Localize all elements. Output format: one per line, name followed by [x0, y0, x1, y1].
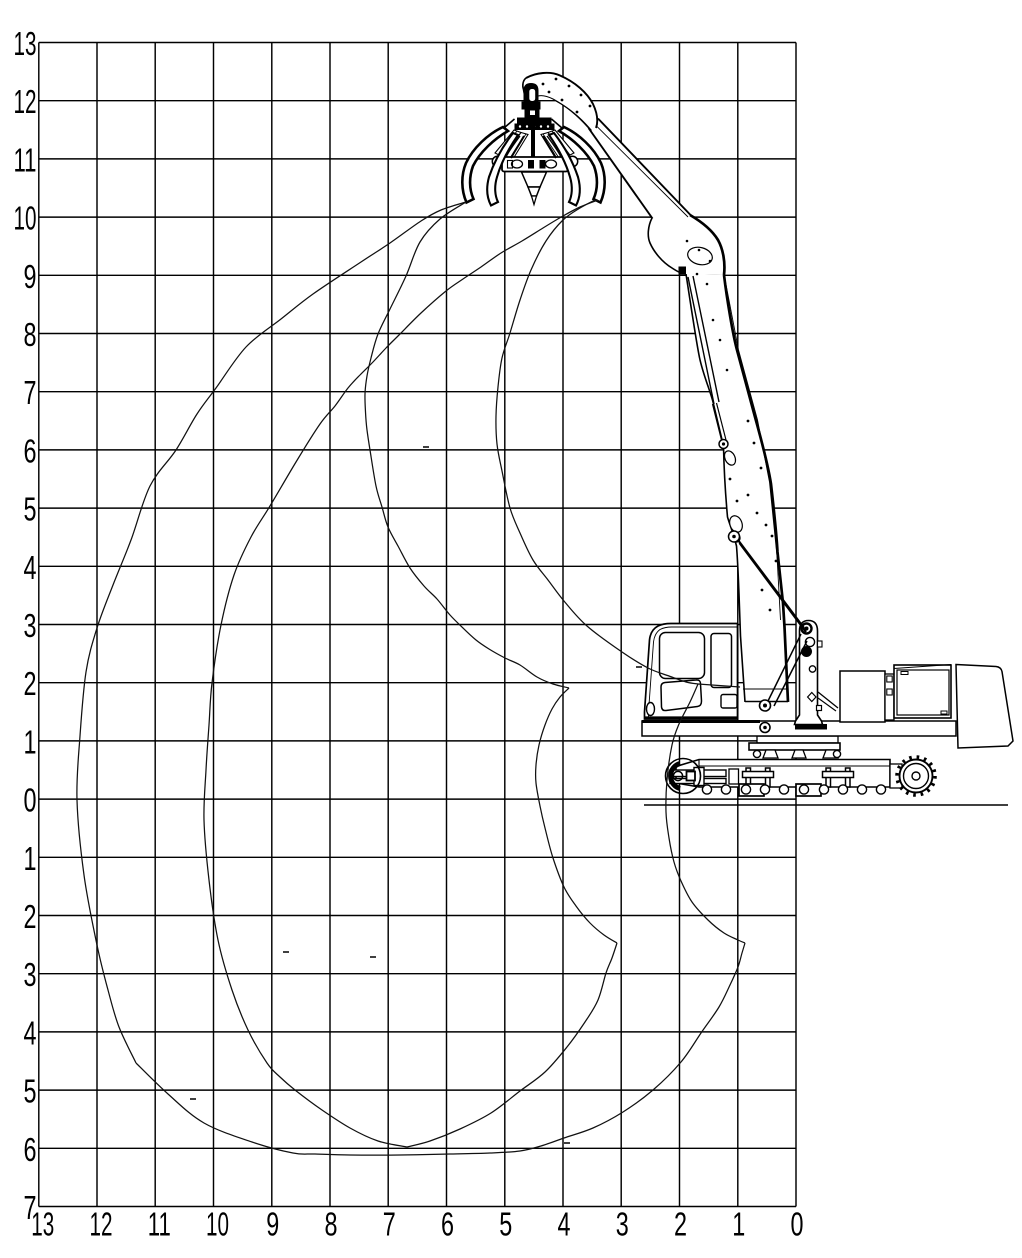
svg-text:8: 8	[325, 1206, 338, 1243]
svg-text:1: 1	[732, 1206, 745, 1243]
svg-text:4: 4	[24, 549, 37, 586]
svg-text:2: 2	[24, 898, 37, 935]
svg-text:11: 11	[14, 141, 37, 178]
svg-text:6: 6	[24, 432, 37, 469]
svg-text:10: 10	[206, 1206, 229, 1243]
svg-text:6: 6	[441, 1206, 454, 1243]
svg-text:3: 3	[616, 1206, 629, 1243]
svg-text:6: 6	[24, 1131, 37, 1168]
svg-text:1: 1	[24, 723, 37, 760]
svg-text:12: 12	[90, 1206, 113, 1243]
svg-text:7: 7	[383, 1206, 396, 1243]
svg-text:0: 0	[24, 782, 37, 819]
svg-text:10: 10	[14, 200, 37, 237]
svg-text:1: 1	[24, 840, 37, 877]
svg-text:2: 2	[24, 665, 37, 702]
svg-text:5: 5	[24, 491, 37, 528]
svg-text:9: 9	[266, 1206, 279, 1243]
svg-text:4: 4	[558, 1206, 571, 1243]
svg-text:13: 13	[31, 1206, 54, 1243]
svg-text:8: 8	[24, 316, 37, 353]
svg-text:12: 12	[14, 83, 37, 120]
svg-text:13: 13	[14, 25, 37, 62]
svg-text:3: 3	[24, 956, 37, 993]
svg-text:2: 2	[674, 1206, 687, 1243]
svg-text:5: 5	[24, 1073, 37, 1110]
svg-text:0: 0	[791, 1206, 804, 1243]
svg-text:5: 5	[499, 1206, 512, 1243]
svg-text:7: 7	[24, 374, 37, 411]
svg-text:11: 11	[148, 1206, 171, 1243]
svg-text:9: 9	[24, 258, 37, 295]
svg-text:3: 3	[24, 607, 37, 644]
svg-text:4: 4	[24, 1014, 37, 1051]
